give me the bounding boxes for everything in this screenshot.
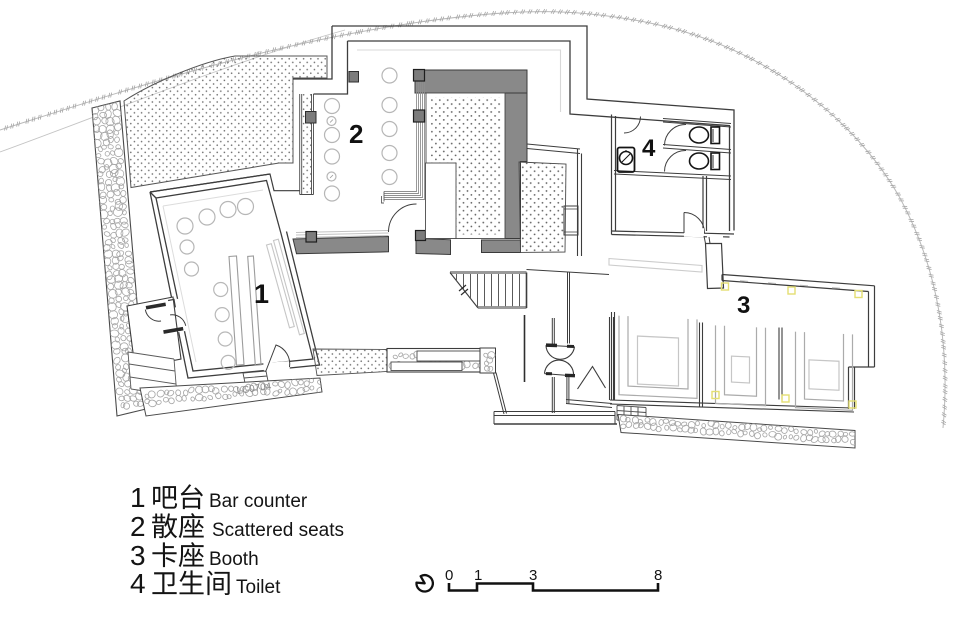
svg-text:2: 2 bbox=[349, 119, 363, 149]
svg-text:Booth: Booth bbox=[209, 549, 259, 570]
svg-text:3: 3 bbox=[529, 567, 537, 584]
svg-text:1: 1 bbox=[254, 279, 269, 309]
svg-text:Toilet: Toilet bbox=[236, 577, 281, 598]
svg-text:4: 4 bbox=[642, 135, 656, 162]
svg-text:3: 3 bbox=[737, 292, 750, 319]
svg-text:Bar counter: Bar counter bbox=[209, 491, 308, 512]
svg-text:Scattered seats: Scattered seats bbox=[212, 520, 344, 541]
svg-text:0: 0 bbox=[445, 567, 453, 584]
svg-text:1: 1 bbox=[130, 482, 146, 513]
svg-text:1: 1 bbox=[474, 567, 482, 584]
svg-text:8: 8 bbox=[654, 567, 662, 584]
svg-text:3: 3 bbox=[130, 540, 146, 571]
svg-text:2: 2 bbox=[130, 511, 146, 542]
svg-text:4: 4 bbox=[130, 568, 146, 599]
